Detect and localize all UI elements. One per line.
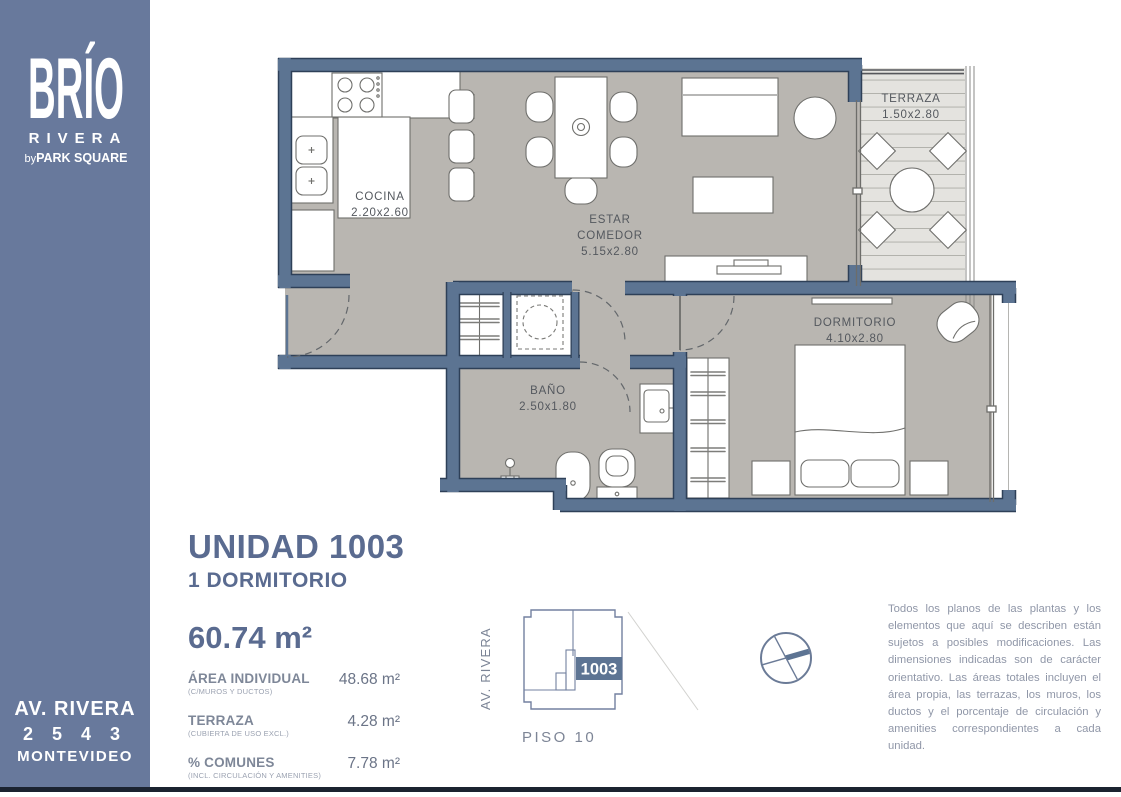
address-number: 2 5 4 3 xyxy=(0,724,150,745)
address-street: AV. RIVERA xyxy=(0,698,150,721)
sofa xyxy=(682,78,778,136)
toilet xyxy=(597,449,637,501)
area-row-terraza: TERRAZA (CUBIERTA DE USO EXCL.) 4.28 m² xyxy=(188,713,400,738)
area-value: 4.28 m² xyxy=(328,713,400,738)
unit-subtitle: 1 DORMITORIO xyxy=(188,569,418,593)
ceiling-light xyxy=(812,298,892,304)
area-label: % COMUNES xyxy=(188,755,328,770)
keyplan-floor-label: PISO 10 xyxy=(522,729,596,746)
area-value: 7.78 m² xyxy=(328,755,400,780)
area-row-individual: ÁREA INDIVIDUAL (C/MUROS Y DUCTOS) 48.68… xyxy=(188,671,400,696)
area-sublabel: (INCL. CIRCULACIÓN Y AMENITIES) xyxy=(188,771,328,780)
svg-text:byPARK SQUARE: byPARK SQUARE xyxy=(24,151,127,165)
brand-logo: BRÍO RIVERA byPARK SQUARE xyxy=(0,0,150,150)
laundry-closet xyxy=(508,290,572,356)
brand-project: RIVERA xyxy=(29,130,128,147)
label-bano-dims: 2.50x1.80 xyxy=(519,401,577,413)
brand-name: BRÍO xyxy=(28,41,124,137)
area-row-comunes: % COMUNES (INCL. CIRCULACIÓN Y AMENITIES… xyxy=(188,755,400,780)
label-cocina: COCINA xyxy=(355,191,405,203)
keyplan-unit-number: 1003 xyxy=(581,661,618,679)
wardrobe xyxy=(687,358,729,498)
label-estar: ESTAR xyxy=(589,214,631,226)
bed xyxy=(795,345,905,495)
north-compass-icon xyxy=(752,622,822,692)
bar-stools xyxy=(449,90,474,201)
label-dormitorio: DORMITORIO xyxy=(814,317,897,329)
label-bano: BAÑO xyxy=(530,384,566,397)
brand-company: PARK SQUARE xyxy=(36,151,127,165)
coffee-table xyxy=(693,177,773,213)
disclaimer-text: Todos los planos de las plantas y los el… xyxy=(888,601,1101,755)
key-plan: AV. RIVERA 1003 PISO 10 xyxy=(468,598,718,763)
nightstand-left xyxy=(752,461,790,495)
footer-bar xyxy=(0,787,1121,792)
address-block: AV. RIVERA 2 5 4 3 MONTEVIDEO xyxy=(0,698,150,765)
label-dormitorio-dims: 4.10x2.80 xyxy=(826,333,884,345)
area-label: ÁREA INDIVIDUAL xyxy=(188,671,328,686)
unit-info: UNIDAD 1003 1 DORMITORIO 60.74 m² ÁREA I… xyxy=(188,528,418,797)
side-table xyxy=(794,97,836,139)
keyplan-street-label: AV. RIVERA xyxy=(478,627,493,710)
label-comedor: COMEDOR xyxy=(577,230,643,242)
bathroom-vanity xyxy=(640,384,674,433)
label-cocina-dims: 2.20x2.60 xyxy=(351,207,409,219)
area-sublabel: (CUBIERTA DE USO EXCL.) xyxy=(188,729,328,738)
lot-boundary-line xyxy=(628,612,698,710)
unit-title: UNIDAD 1003 xyxy=(188,528,418,566)
kitchen-tall-cabinet xyxy=(290,210,334,271)
nightstand-right xyxy=(910,461,948,495)
label-terraza: TERRAZA xyxy=(881,93,940,105)
area-label: TERRAZA xyxy=(188,713,328,728)
area-sublabel: (C/MUROS Y DUCTOS) xyxy=(188,687,328,696)
brand-sidebar: BRÍO RIVERA byPARK SQUARE AV. RIVERA 2 5… xyxy=(0,0,150,787)
address-city: MONTEVIDEO xyxy=(0,748,150,765)
unit-total-area: 60.74 m² xyxy=(188,620,418,656)
stove xyxy=(332,73,382,117)
label-estar-dims: 5.15x2.80 xyxy=(581,246,639,258)
terraza-railing xyxy=(966,66,974,308)
area-value: 48.68 m² xyxy=(328,671,400,696)
label-terraza-dims: 1.50x2.80 xyxy=(882,109,940,121)
brand-by: by xyxy=(24,153,36,165)
tv-console xyxy=(665,256,807,282)
area-breakdown: ÁREA INDIVIDUAL (C/MUROS Y DUCTOS) 48.68… xyxy=(188,671,418,780)
floor-plan: COCINA 2.20x2.60 ESTAR COMEDOR 5.15x2.80… xyxy=(270,40,1020,540)
